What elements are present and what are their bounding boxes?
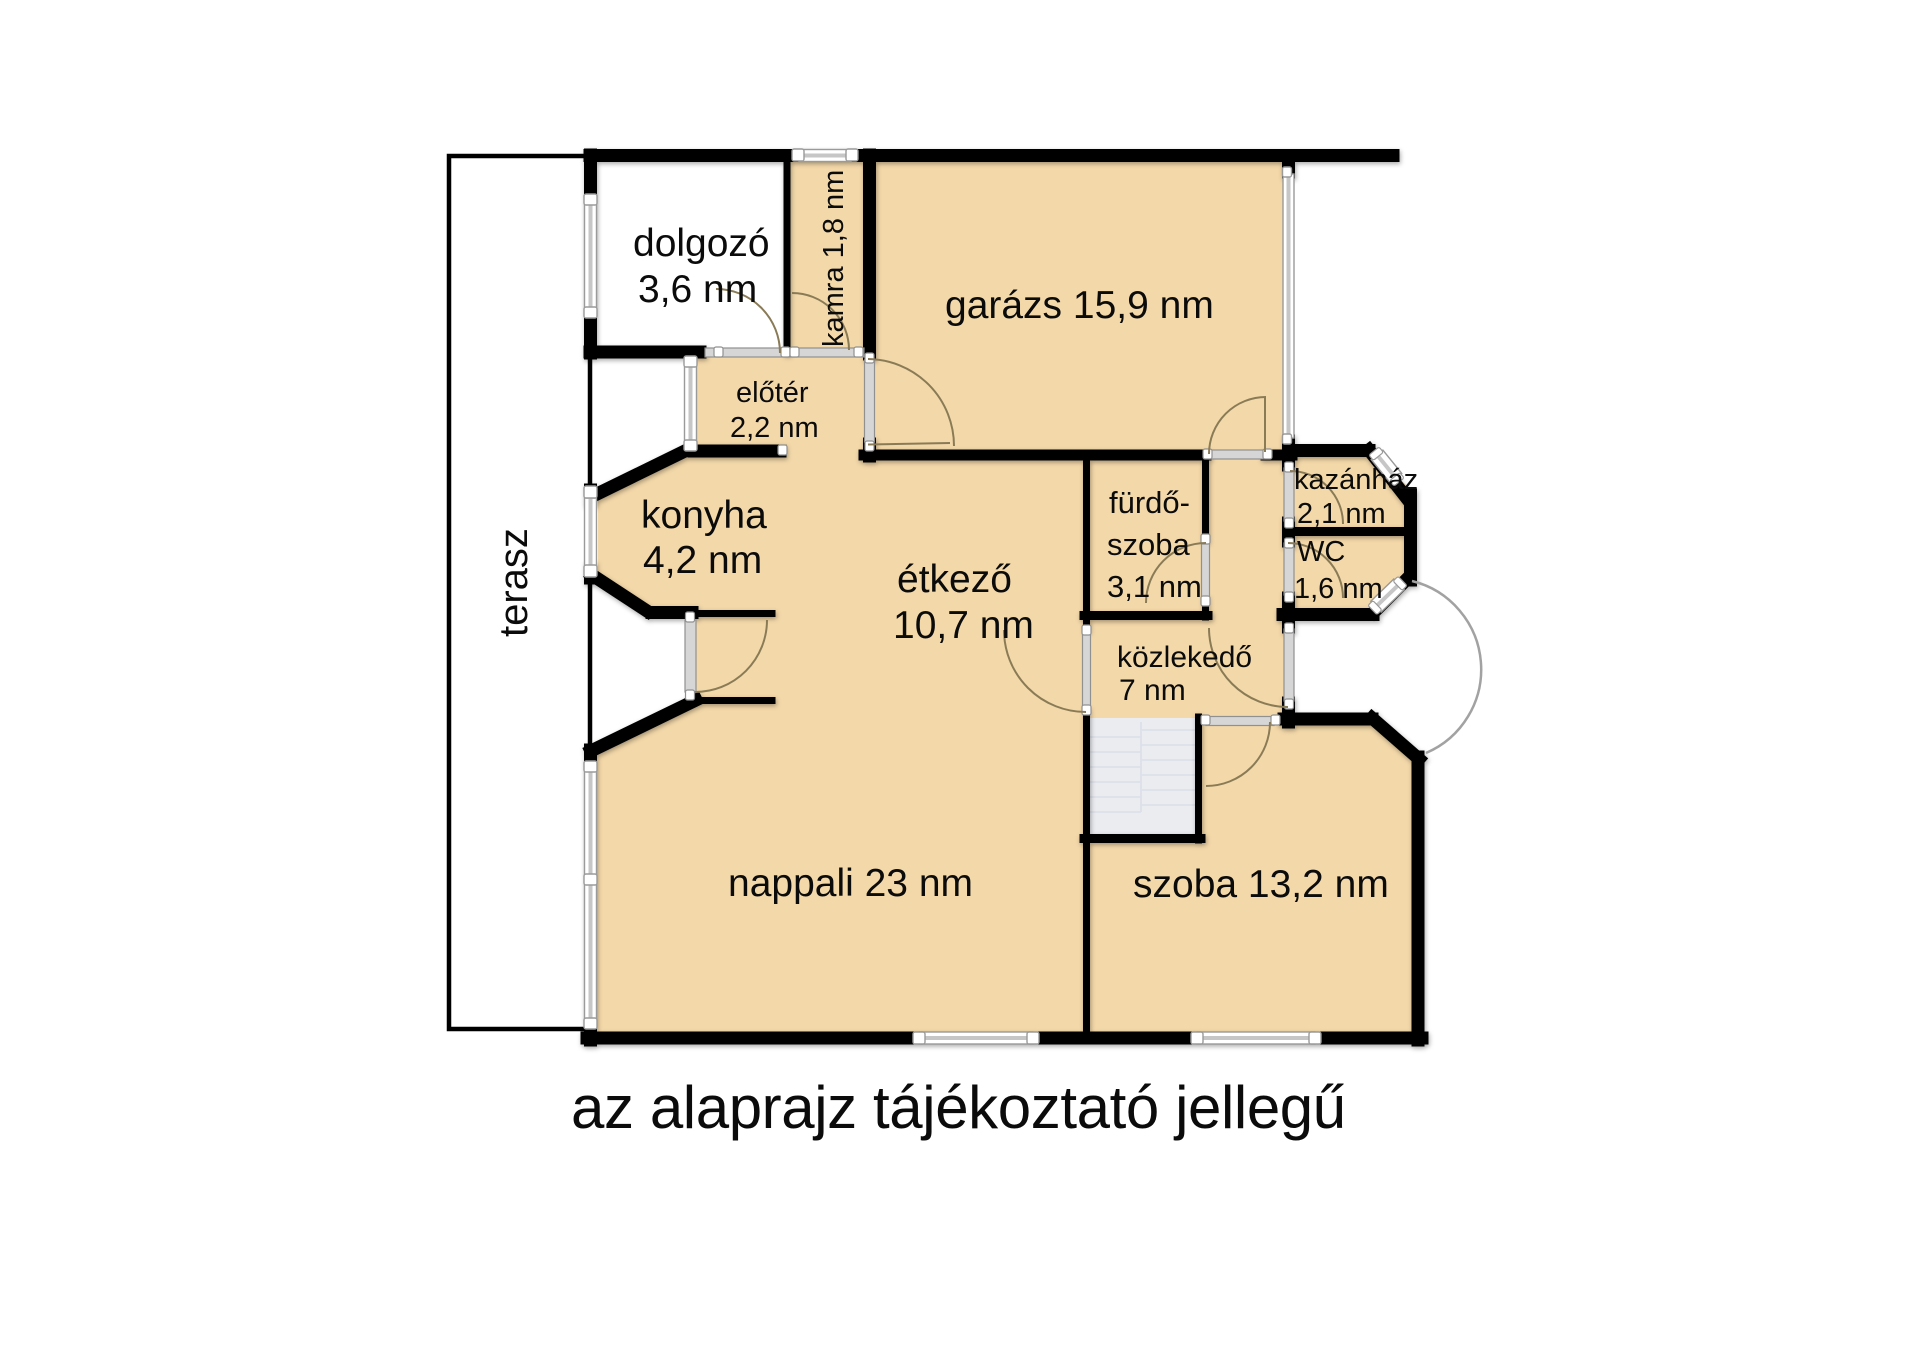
svg-text:2,1 nm: 2,1 nm [1297,498,1386,530]
svg-text:WC: WC [1297,536,1345,568]
svg-text:garázs 15,9 nm: garázs 15,9 nm [945,284,1214,327]
svg-text:terasz: terasz [492,528,536,637]
svg-text:2,2 nm: 2,2 nm [730,412,819,444]
svg-text:kazánház: kazánház [1294,464,1418,496]
svg-text:10,7 nm: 10,7 nm [893,604,1034,647]
svg-text:fürdő-: fürdő- [1109,485,1190,520]
svg-text:konyha: konyha [641,494,767,537]
svg-text:közlekedő: közlekedő [1117,641,1252,674]
svg-text:4,2 nm: 4,2 nm [643,539,762,582]
svg-text:előtér: előtér [736,377,809,409]
svg-text:3,6 nm: 3,6 nm [638,268,757,311]
svg-text:szoba 13,2 nm: szoba 13,2 nm [1133,863,1389,906]
svg-text:dolgozó: dolgozó [633,222,770,265]
svg-text:1,6 nm: 1,6 nm [1294,573,1383,605]
svg-text:az alaprajz tájékoztató jelleg: az alaprajz tájékoztató jellegű [571,1074,1346,1141]
svg-text:3,1 nm: 3,1 nm [1107,569,1202,604]
svg-text:kamra 1,8 nm: kamra 1,8 nm [818,170,850,347]
svg-text:7 nm: 7 nm [1119,674,1186,707]
svg-text:nappali 23 nm: nappali 23 nm [728,862,973,905]
svg-text:étkező: étkező [897,558,1012,601]
svg-text:szoba: szoba [1107,527,1190,562]
